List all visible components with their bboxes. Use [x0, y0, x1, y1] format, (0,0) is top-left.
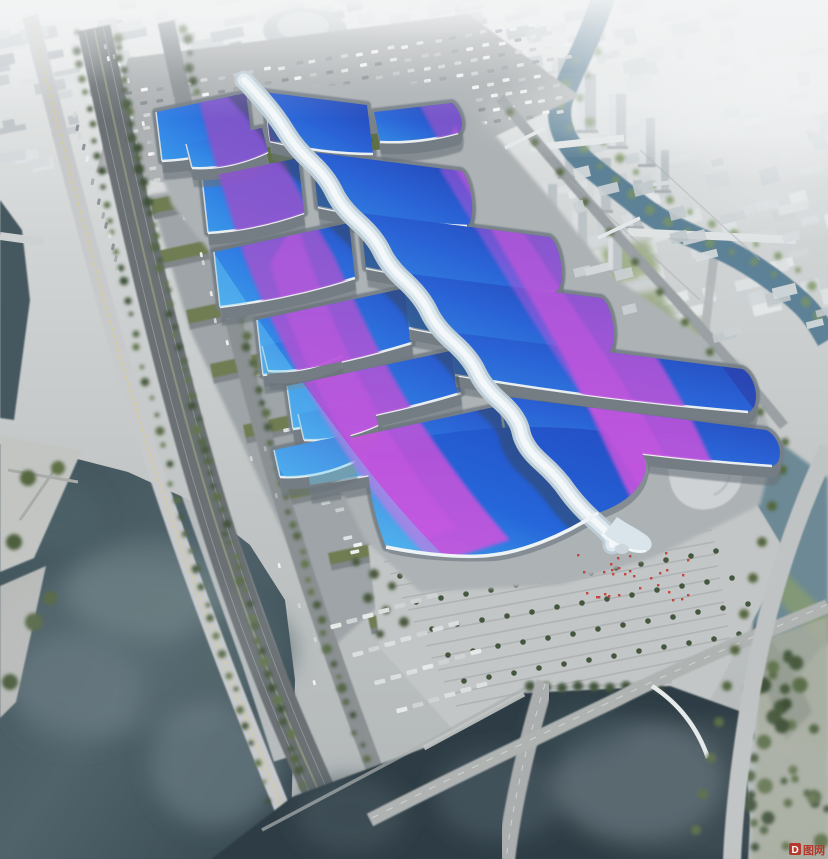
svg-text:图网: 图网 [803, 844, 825, 857]
svg-text:D: D [792, 845, 799, 856]
